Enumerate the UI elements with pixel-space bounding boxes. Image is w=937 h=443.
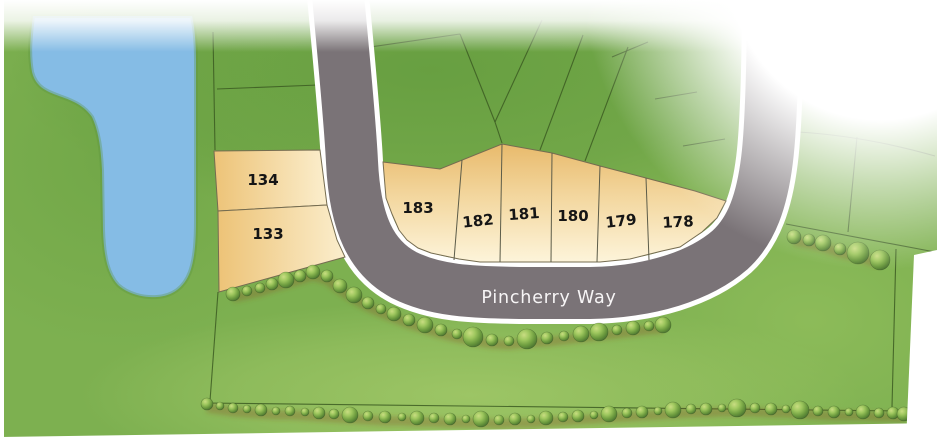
tree xyxy=(517,329,537,349)
tree xyxy=(590,411,598,419)
tree xyxy=(644,321,654,331)
tree xyxy=(346,287,362,303)
tree xyxy=(665,402,681,418)
tree xyxy=(444,413,456,425)
tree xyxy=(728,399,746,417)
tree xyxy=(417,317,433,333)
margin-left xyxy=(0,0,4,443)
lot-label-134[interactable]: 134 xyxy=(247,171,278,189)
tree xyxy=(255,404,267,416)
tree xyxy=(228,403,238,413)
tree xyxy=(874,408,884,418)
tree xyxy=(362,297,374,309)
tree xyxy=(435,324,447,336)
tree xyxy=(504,336,514,346)
tree xyxy=(654,407,662,415)
tree xyxy=(301,408,309,416)
tree xyxy=(278,272,294,288)
tree xyxy=(376,304,386,314)
tree xyxy=(294,270,306,282)
tree xyxy=(463,327,483,347)
tree xyxy=(410,411,424,425)
tree xyxy=(266,278,278,290)
tree xyxy=(403,314,415,326)
lot-label-182[interactable]: 182 xyxy=(461,210,494,231)
tree xyxy=(590,323,608,341)
tree xyxy=(559,331,569,341)
tree xyxy=(216,402,224,410)
site-plan-canvas: Pincherry Way 134 133 183 182 181 180 17… xyxy=(0,0,937,443)
tree xyxy=(387,307,401,321)
street-name-label: Pincherry Way xyxy=(481,288,616,308)
tree xyxy=(782,405,790,413)
tree xyxy=(255,283,265,293)
tree xyxy=(700,403,712,415)
tree xyxy=(473,411,489,427)
tree xyxy=(718,404,726,412)
tree xyxy=(242,286,252,296)
tree xyxy=(845,408,853,416)
tree xyxy=(612,325,622,335)
tree xyxy=(452,329,462,339)
lot-label-183[interactable]: 183 xyxy=(402,199,433,217)
lot-label-133[interactable]: 133 xyxy=(252,225,283,243)
tree xyxy=(572,410,584,422)
tree xyxy=(527,415,535,423)
subdivision-site-plan: Pincherry Way 134 133 183 182 181 180 17… xyxy=(0,0,937,443)
tree xyxy=(541,332,553,344)
tree xyxy=(655,317,671,333)
tree xyxy=(321,270,333,282)
fade-top-right xyxy=(540,0,937,280)
tree xyxy=(494,415,504,425)
tree xyxy=(363,411,373,421)
tree xyxy=(828,406,840,418)
tree xyxy=(486,334,498,346)
tree xyxy=(765,403,777,415)
tree xyxy=(601,406,617,422)
tree xyxy=(750,403,760,413)
tree xyxy=(201,398,213,410)
tree xyxy=(329,409,339,419)
tree xyxy=(539,411,553,425)
tree xyxy=(856,405,870,419)
tree xyxy=(573,326,589,342)
tree xyxy=(226,287,240,301)
tree xyxy=(558,412,568,422)
tree xyxy=(462,415,470,423)
tree xyxy=(342,407,358,423)
tree xyxy=(622,408,632,418)
tree xyxy=(813,406,823,416)
tree xyxy=(379,411,391,423)
lot-label-181[interactable]: 181 xyxy=(508,204,540,224)
tree xyxy=(509,413,521,425)
tree xyxy=(626,321,640,335)
tree xyxy=(306,265,320,279)
tree xyxy=(429,413,439,423)
tree xyxy=(313,407,325,419)
tree xyxy=(272,407,280,415)
tree xyxy=(791,401,809,419)
tree xyxy=(636,406,648,418)
tree xyxy=(686,404,696,414)
tree xyxy=(398,413,406,421)
tree xyxy=(285,406,295,416)
tree xyxy=(243,405,251,413)
tree xyxy=(333,279,347,293)
